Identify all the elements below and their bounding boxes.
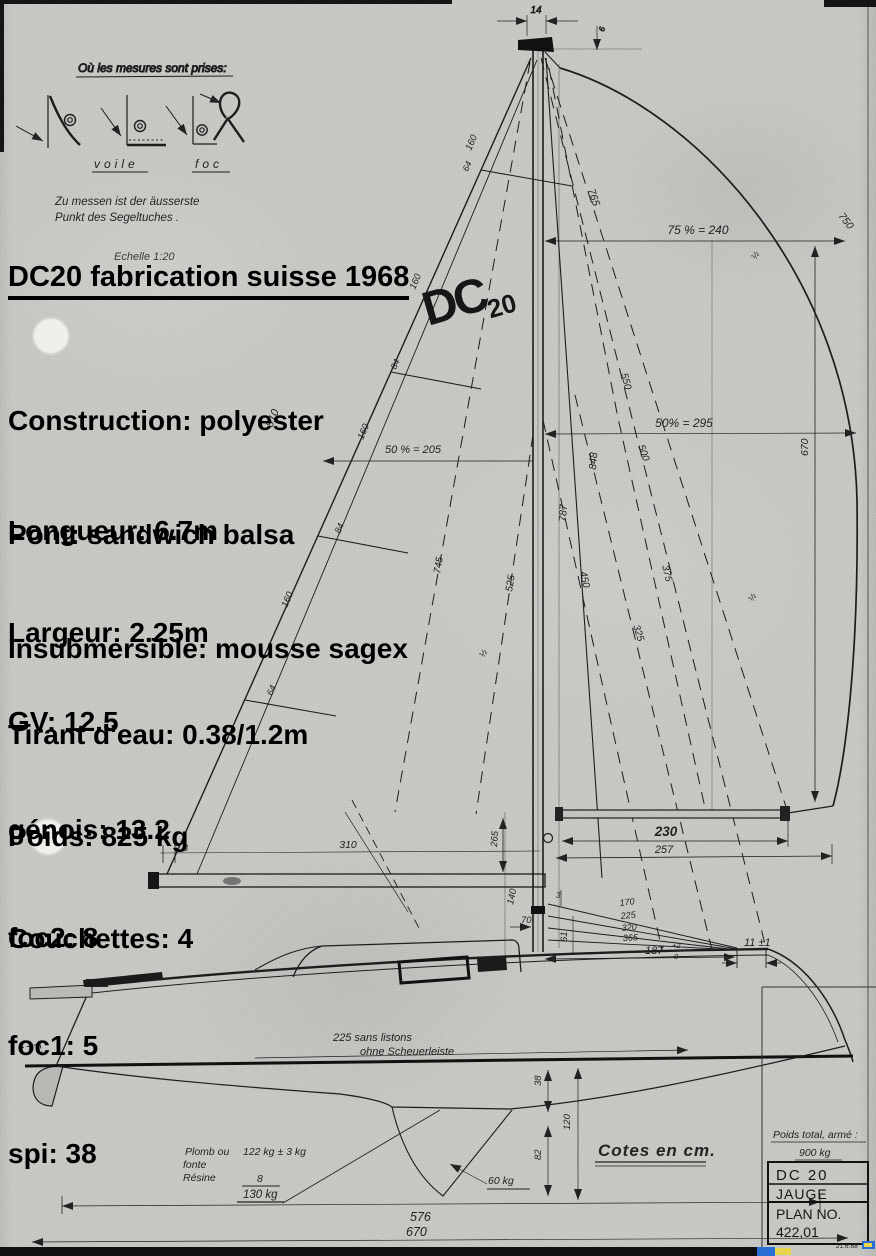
keel-weight-label: 60 kg (488, 1175, 514, 1187)
scanned-sailplan-page: Où les mesures sont prises: voile foc Zu… (0, 0, 876, 1256)
ballast-line3: Résine (183, 1172, 216, 1184)
ballast-weight1: 122 kg ± 3 kg (243, 1146, 306, 1158)
dim-fan-320: 320 (621, 922, 637, 933)
legend-note-line2: Punkt des Segeltuches . (55, 212, 179, 224)
overlay-sails-block: GV: 12.5 génois: 13.2 foc2: 8 foc1: 5 sp… (8, 632, 170, 1208)
dim-gooseneck-height: 265 (489, 830, 501, 848)
dim-stem-gap: 11 ±1 (744, 937, 771, 949)
dim-mast-tick: 3 (556, 891, 561, 900)
dim-batten-64: 64 (461, 160, 474, 173)
dim-girth-160: 160 (464, 133, 481, 153)
dim-fan-225: 225 (619, 909, 637, 921)
dim-half-mark: ½ (749, 249, 762, 261)
dim-half-mark: ½ (746, 591, 759, 603)
overlay-construction-line: Construction: polyester (8, 402, 408, 440)
bottom-scan-strip (0, 1241, 875, 1256)
spinnaker-pole (555, 806, 832, 864)
measure-legend: Où les mesures sont prises: voile foc Zu… (16, 61, 244, 263)
overlay-sail-line: génois: 13.2 (8, 812, 170, 848)
dim-loa-670: 670 (406, 1225, 427, 1239)
dim-pole-length: 230 (654, 824, 678, 839)
dim-masthead-offset: 6 (597, 25, 607, 32)
legend-title: Où les mesures sont prises: (78, 61, 227, 75)
dim-spi-500: 500 (635, 443, 651, 463)
plan-number: 422,01 (776, 1224, 819, 1240)
mast-gate-mark (531, 906, 545, 914)
ballast-line2: fonte (183, 1159, 207, 1171)
legend-foc-label: foc (195, 157, 223, 171)
dim-mast-luff: 787 (557, 503, 570, 522)
dim-spi-550: 550 (618, 372, 633, 391)
overlay-sail-line: foc1: 5 (8, 1028, 170, 1064)
units-note: Cotes en cm. (595, 1141, 716, 1166)
dim-main-leech: 848 (587, 452, 600, 470)
dim-boom-length: 310 (339, 839, 357, 851)
dim-spi-height: 670 (799, 438, 811, 456)
overlay-title: DC20 fabrication suisse 1968 (8, 261, 409, 300)
total-weight-value: 900 kg (799, 1147, 831, 1159)
ballast-note: Plomb ou fonte Résine 122 kg ± 3 kg 8 13… (183, 1110, 440, 1203)
ballast-total: 130 kg (243, 1189, 278, 1201)
dim-745: 745 (432, 556, 446, 575)
units-note-text: Cotes en cm. (598, 1141, 716, 1160)
overlay-sail-line: spi: 38 (8, 1136, 170, 1172)
masthead-fitting (518, 37, 554, 52)
hull-note-sans-listons: 225 sans listons (332, 1032, 412, 1044)
dim-lwl-576: 576 (410, 1210, 431, 1224)
plan-no-label: PLAN NO. (776, 1206, 841, 1222)
dim-mast-gate: 70 (521, 915, 532, 926)
dim-spi-luff: 765 (585, 187, 602, 208)
ballast-weight2: 8 (257, 1173, 263, 1185)
dim-tolerance-plus: +2 (672, 941, 681, 950)
boat-model-cell: DC 20 (776, 1167, 829, 1184)
dim-spi-width-50: 50% = 295 (655, 416, 713, 430)
dim-foc1-luff: 375 (659, 564, 674, 583)
sheave-circle (544, 834, 553, 843)
dim-82: 82 (533, 1149, 544, 1160)
dim-spi-width-75: 75 % = 240 (667, 223, 728, 237)
dim-draft-38: 38 (533, 1075, 544, 1086)
total-weight-label: Poids total, armé : (773, 1129, 858, 1141)
dim-mast-lower: 140 (505, 887, 519, 905)
dim-half-mark: ½ (477, 647, 490, 659)
overlay-sail-line: GV: 12.5 (8, 704, 170, 740)
legend-voile-label: voile (94, 157, 139, 171)
dim-foc2-luff: 450 (577, 570, 591, 589)
dim-spi-leech: 750 (836, 210, 856, 231)
dim-foc1-leech: 325 (630, 624, 646, 644)
hull-note-ohne-scheuerleiste: ohne Scheuerleiste (360, 1046, 454, 1058)
jauge-cell: JAUGE (776, 1186, 828, 1202)
sail-logo: DC 20 (416, 261, 519, 342)
title-block: Poids total, armé : 900 kg DC 20 JAUGE P… (762, 987, 876, 1250)
legend-note-line1: Zu messen ist der äusserste (54, 196, 199, 208)
ballast-line1: Plomb ou (185, 1146, 230, 1158)
dim-draft-120: 120 (562, 1113, 573, 1130)
dim-pole-overall: 257 (654, 844, 674, 856)
overlay-title-text: DC20 fabrication suisse 1968 (8, 261, 409, 300)
dim-fan-170: 170 (619, 896, 635, 908)
overlay-sail-line: foc2: 8 (8, 920, 170, 956)
dim-masthead-width: 14 (530, 5, 542, 16)
deck-fan-dims (545, 904, 781, 968)
dim-525: 525 (504, 574, 518, 593)
handwritten-date: 21.6.68 (835, 1243, 858, 1250)
spinnaker-lines (545, 52, 857, 813)
overlay-spec-line: Longueur: 6.7m (8, 514, 308, 548)
dim-fan-365: 365 (623, 932, 640, 943)
